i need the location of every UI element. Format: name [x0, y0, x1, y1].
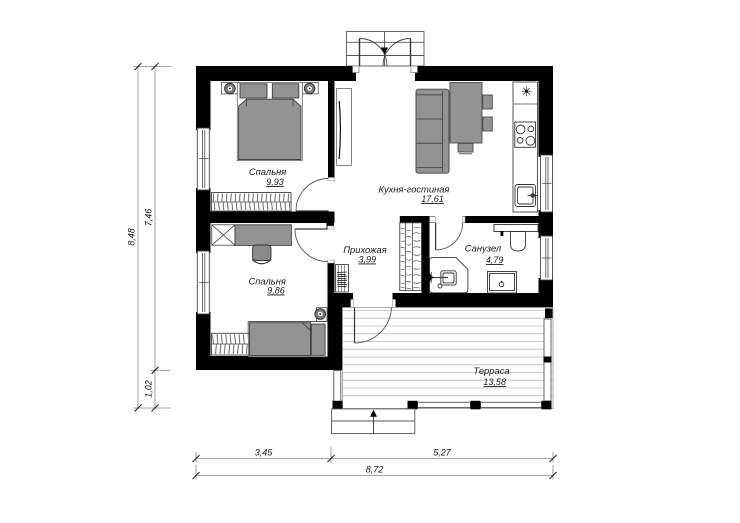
svg-text:Терраса: Терраса	[473, 365, 509, 376]
svg-text:Спальня: Спальня	[249, 166, 286, 177]
svg-text:7,46: 7,46	[144, 209, 154, 227]
svg-text:4,79: 4,79	[486, 255, 504, 265]
svg-text:8,72: 8,72	[366, 465, 384, 475]
svg-text:5,27: 5,27	[433, 448, 452, 458]
svg-text:3,99: 3,99	[359, 255, 377, 265]
svg-text:17,61: 17,61	[421, 194, 444, 204]
svg-text:1,02: 1,02	[144, 380, 154, 398]
svg-text:Кухня-гостиная: Кухня-гостиная	[379, 184, 450, 195]
svg-text:9,93: 9,93	[266, 177, 284, 187]
svg-text:13,58: 13,58	[483, 377, 506, 387]
svg-text:Санузел: Санузел	[465, 243, 502, 254]
svg-text:Прихожая: Прихожая	[343, 244, 386, 255]
svg-text:8,48: 8,48	[127, 228, 137, 246]
svg-text:9,86: 9,86	[267, 286, 285, 296]
svg-text:3,45: 3,45	[255, 448, 274, 458]
